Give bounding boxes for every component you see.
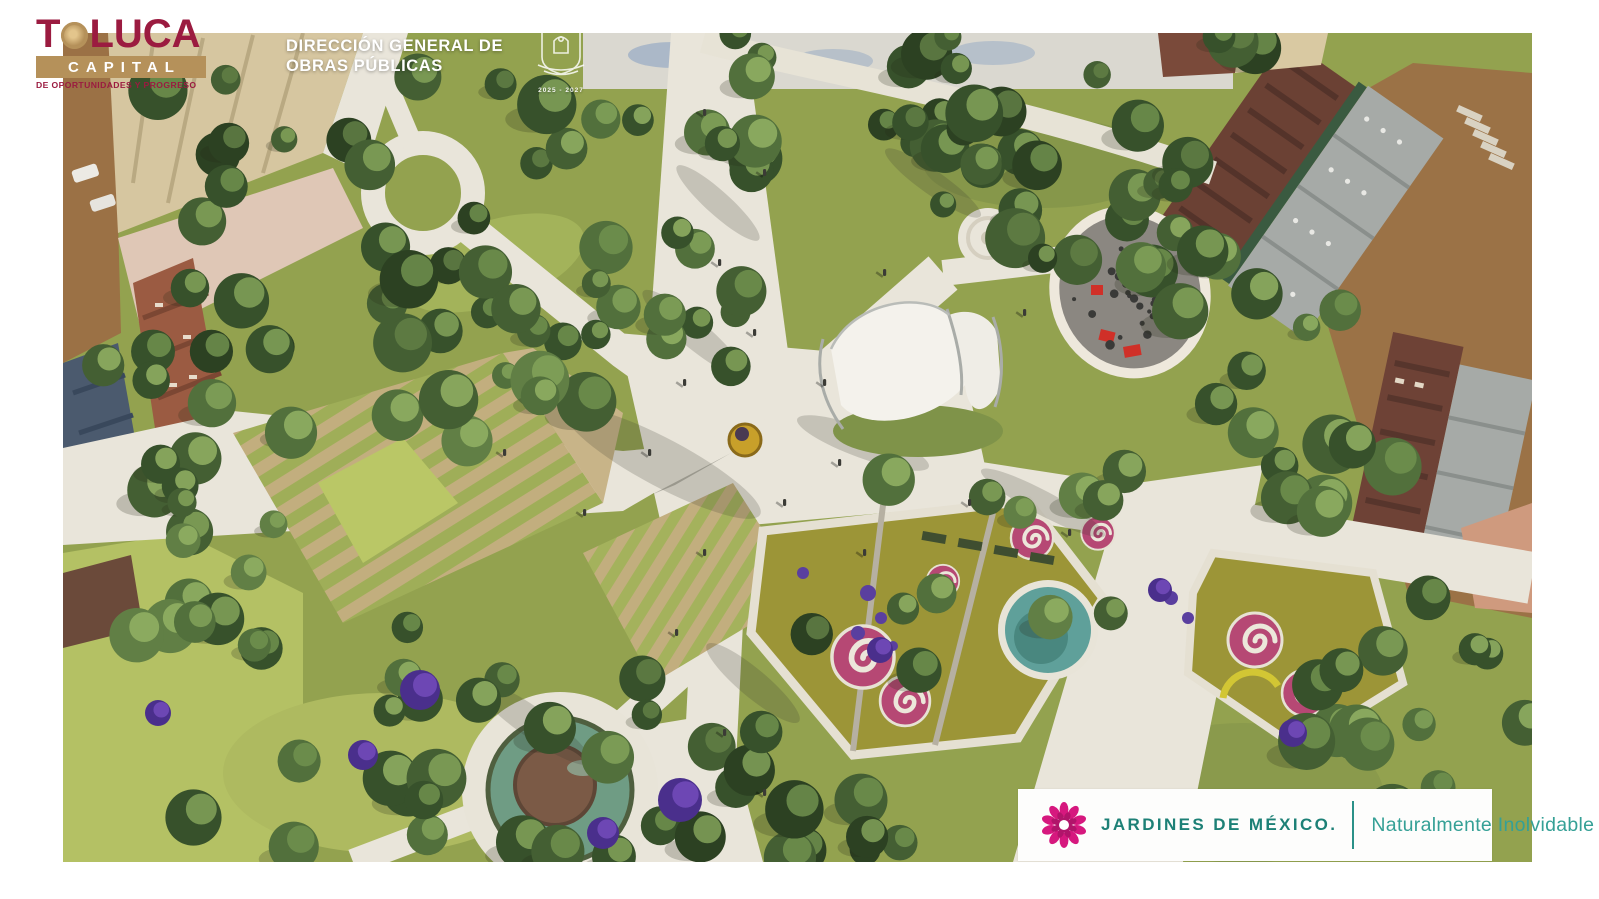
crest-years: 2025 - 2027 <box>530 87 592 94</box>
toluca-capital-bar: CAPITAL <box>36 56 206 78</box>
jardines-brand-box: JARDINES DE MÉXICO. Naturalmente Inolvid… <box>1018 789 1492 861</box>
toluca-wordmark: T LUCA <box>36 14 206 54</box>
toluca-tagline: DE OPORTUNIDADES Y PROGRESO <box>36 80 206 90</box>
brand-divider <box>1352 801 1354 849</box>
presentation-slide: T LUCA CAPITAL DE OPORTUNIDADES Y PROGRE… <box>0 0 1599 899</box>
toluca-capital-logo: T LUCA CAPITAL DE OPORTUNIDADES Y PROGRE… <box>36 14 206 90</box>
brand-slogan: Naturalmente Inolvidable <box>1371 814 1594 837</box>
department-title: DIRECCIÓN GENERAL DE OBRAS PÚBLICAS <box>286 36 503 76</box>
department-line2: OBRAS PÚBLICAS <box>286 56 503 76</box>
toluca-t: T <box>36 14 60 54</box>
department-line1: DIRECCIÓN GENERAL DE <box>286 36 503 56</box>
bandshell-canopy <box>820 302 1003 457</box>
municipal-crest-icon <box>530 27 592 81</box>
toluca-luca: LUCA <box>89 14 200 54</box>
municipal-crest: 2025 - 2027 <box>530 27 592 94</box>
park-render-svg <box>63 33 1532 862</box>
toluca-o-ring-icon <box>61 22 88 49</box>
dahlia-flower-icon <box>1040 801 1088 849</box>
park-render <box>63 33 1532 862</box>
brand-name: JARDINES DE MÉXICO. <box>1101 815 1337 835</box>
